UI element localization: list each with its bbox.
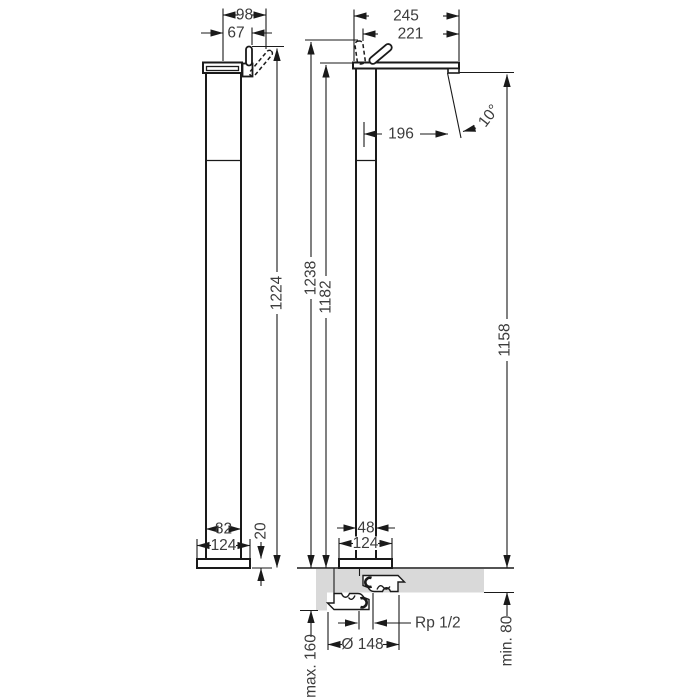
- faucet-body-front: [356, 69, 376, 560]
- dim-124-side-label: 124: [211, 537, 237, 554]
- spout-arm-front: [353, 63, 459, 69]
- floor-max-label: max. 160: [303, 634, 320, 698]
- dim-reach-221: 221: [363, 26, 459, 43]
- spout-outlet-front: [448, 69, 459, 74]
- dim-67-label: 67: [227, 25, 244, 42]
- dim-196-label: 196: [388, 126, 414, 143]
- fitting-flange-upper: [363, 576, 405, 592]
- floor-min-label: min. 80: [499, 615, 516, 666]
- dim-height-1182: 1182: [318, 63, 357, 568]
- dim-height-1158: 1158: [459, 73, 514, 568]
- dim-spray-angle-10: 10°: [463, 102, 503, 132]
- faucet-body-side: [206, 73, 241, 559]
- front-view: [339, 41, 461, 568]
- spray-angle-line: [448, 73, 462, 138]
- base-plate-side: [197, 559, 250, 568]
- base-plate-front: [339, 559, 392, 568]
- dim-48-label: 48: [357, 520, 374, 537]
- dim-221-label: 221: [398, 26, 424, 43]
- handle-lever-front-closed-position: [355, 41, 366, 65]
- floor-max-depth-area: [316, 569, 327, 611]
- dim-20-label: 20: [253, 522, 270, 540]
- dim-245-label: 245: [393, 8, 419, 25]
- dim-height-1224: 1224: [252, 47, 286, 568]
- dim-1158-label: 1158: [497, 323, 514, 356]
- dim-98-label: 98: [236, 7, 253, 24]
- dim-124-front-label: 124: [353, 535, 379, 552]
- dim-10deg-label: 10°: [475, 102, 503, 131]
- dim-floor-depth-max: max. 160: [300, 611, 320, 698]
- technical-drawing-page: 98 67 1224 245 221: [0, 0, 700, 700]
- dim-body-width-48: 48: [337, 520, 395, 537]
- thread-label: Rp 1/2: [415, 615, 461, 632]
- dim-82-label: 82: [215, 521, 232, 538]
- dim-1182-label: 1182: [318, 280, 335, 313]
- dim-1224-label: 1224: [269, 275, 286, 310]
- faucet-dimension-drawing: 98 67 1224 245 221: [0, 0, 700, 700]
- side-view: [197, 47, 274, 569]
- spout-plate-side: [207, 67, 239, 71]
- dim-base-height-20: 20: [252, 522, 272, 586]
- handle-lever-side: [246, 47, 252, 66]
- dim-floor-depth-min: min. 80: [484, 593, 516, 667]
- diameter-label: Ø 148: [341, 636, 383, 653]
- fitting-flange-lower: [328, 594, 370, 610]
- floor-min-depth-area: [327, 569, 484, 593]
- dim-handle-offset-67: 67: [201, 25, 272, 46]
